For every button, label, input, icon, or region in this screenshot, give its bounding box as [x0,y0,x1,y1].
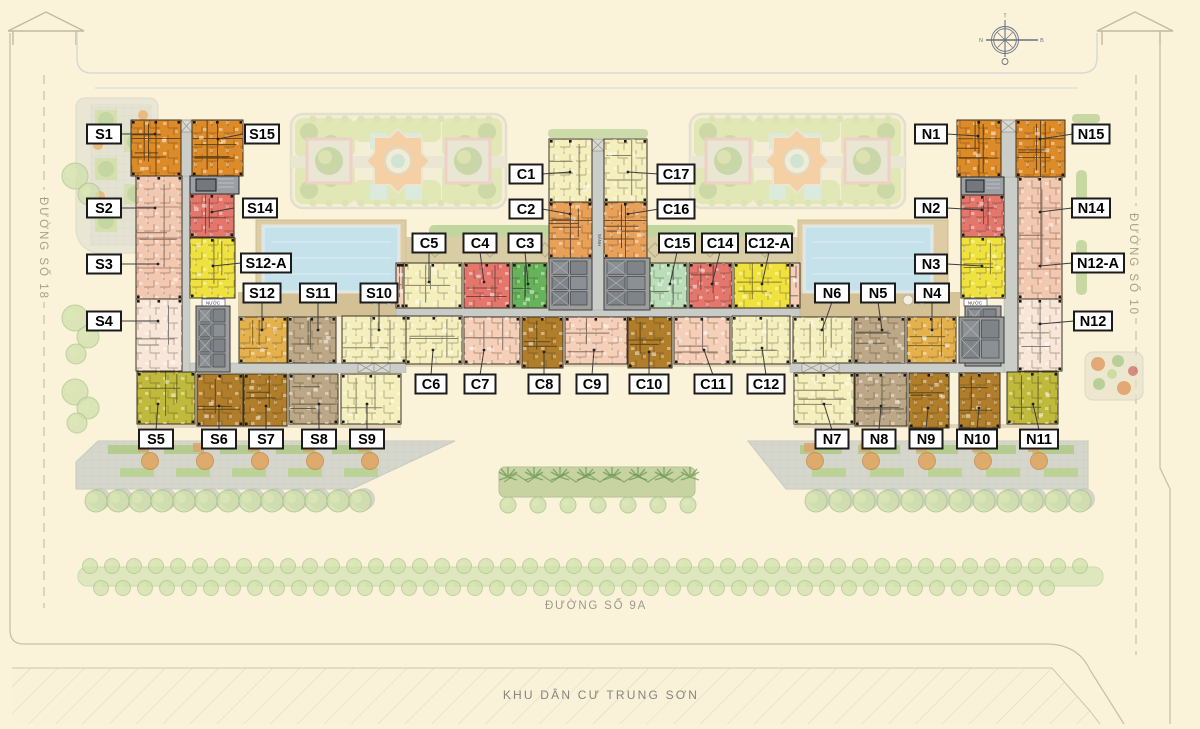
svg-text:ĐƯỜNG SỐ 18: ĐƯỜNG SỐ 18 [37,197,51,300]
svg-text:N10: N10 [964,432,991,448]
svg-text:S8: S8 [310,432,328,448]
svg-text:NƯỚC: NƯỚC [968,300,983,306]
svg-text:N6: N6 [823,286,842,302]
svg-text:N15: N15 [1078,127,1105,143]
svg-text:C12: C12 [753,377,780,393]
svg-text:S14: S14 [247,201,273,217]
svg-text:NƯỚC: NƯỚC [206,300,221,306]
svg-text:S1: S1 [95,127,113,143]
svg-text:S12: S12 [249,286,275,302]
svg-text:N2: N2 [922,201,941,217]
svg-text:S9: S9 [358,432,376,448]
svg-text:ĐƯỜNG SỐ 10: ĐƯỜNG SỐ 10 [1127,213,1141,316]
svg-text:N12-A: N12-A [1077,256,1119,272]
svg-text:C5: C5 [420,236,439,252]
svg-text:N5: N5 [869,286,888,302]
svg-text:N3: N3 [922,257,941,273]
svg-text:C4: C4 [471,236,490,252]
svg-text:S6: S6 [210,432,228,448]
svg-text:C7: C7 [471,377,490,393]
svg-text:N1: N1 [922,127,941,143]
svg-text:C9: C9 [583,377,602,393]
svg-text:S12-A: S12-A [245,256,287,272]
svg-text:S10: S10 [366,286,392,302]
svg-text:S4: S4 [95,314,113,330]
svg-text:N: N [979,38,983,44]
svg-text:S15: S15 [249,127,275,143]
svg-text:C6: C6 [422,377,441,393]
svg-text:N4: N4 [923,286,942,302]
svg-text:ĐƯỜNG SỐ 9A: ĐƯỜNG SỐ 9A [545,598,647,612]
svg-text:C16: C16 [663,202,690,218]
svg-text:N12: N12 [1080,314,1107,330]
svg-text:S11: S11 [306,286,331,302]
svg-text:C14: C14 [707,236,734,252]
svg-text:B: B [1040,38,1044,44]
svg-text:SẢNH: SẢNH [597,234,603,247]
svg-text:C1: C1 [517,167,536,183]
svg-text:S7: S7 [257,432,275,448]
svg-text:C3: C3 [516,236,535,252]
svg-text:C17: C17 [663,167,690,183]
svg-text:C10: C10 [636,377,663,393]
svg-text:C11: C11 [700,377,726,393]
svg-text:C12-A: C12-A [748,236,790,252]
svg-text:N8: N8 [870,432,889,448]
svg-text:C2: C2 [517,202,536,218]
svg-text:C15: C15 [664,236,691,252]
svg-text:S3: S3 [95,257,113,273]
svg-text:N14: N14 [1078,201,1105,217]
svg-text:KHU DÂN CƯ TRUNG SƠN: KHU DÂN CƯ TRUNG SƠN [503,687,699,702]
svg-text:N7: N7 [823,432,842,448]
svg-text:N11: N11 [1026,432,1052,448]
svg-text:S2: S2 [95,201,113,217]
svg-text:C8: C8 [535,377,554,393]
svg-text:N9: N9 [917,432,936,448]
svg-text:S5: S5 [147,432,165,448]
